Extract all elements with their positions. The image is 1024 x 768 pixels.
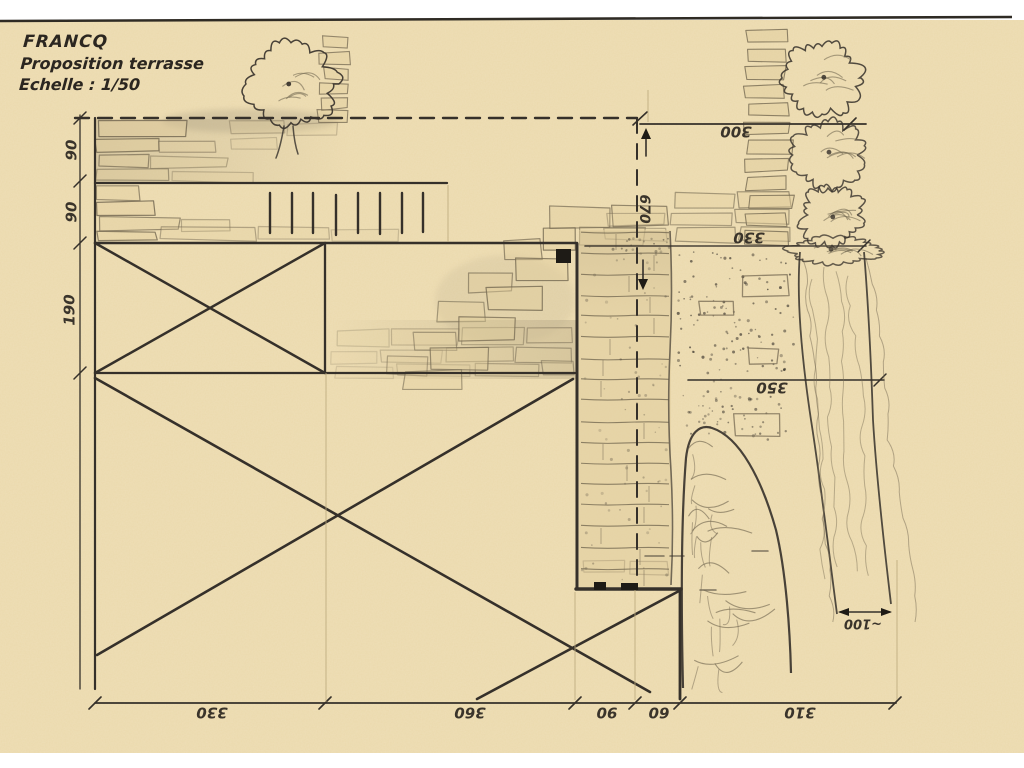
stone [159,141,216,152]
stipple-dot [712,252,714,254]
stone [527,328,573,343]
stipple-dot [626,240,628,242]
dim-offset-670: 670 [636,194,652,223]
stipple-dot [653,243,655,245]
terrace-plan-drawing: FRANCQ Proposition terrasse Echelle : 1/… [0,0,1024,768]
stone [151,156,229,169]
stipple-dot [752,426,754,428]
stipple-dot [767,438,770,441]
stipple-dot [780,354,783,357]
stipple-dot [623,258,625,260]
stipple-dot [698,405,699,406]
brick [745,158,789,172]
stipple-dot [707,311,709,313]
bush-center-dot [286,82,291,87]
stipple-dot [639,252,642,255]
stone [486,286,542,310]
stipple-dot [655,253,658,256]
brick [319,51,351,64]
stipple-dot [646,299,648,301]
stipple-dot [581,569,583,571]
stipple-dot [766,258,768,260]
stipple-dot [748,397,751,400]
stipple-dot [629,347,631,349]
stipple-dot [585,299,588,302]
dim-bottom-330: 330 [196,704,227,722]
stipple-dot [750,329,753,332]
stipple-dot [746,370,748,372]
stone [670,213,732,226]
stone [98,120,187,136]
stone [543,228,575,251]
stipple-dot [665,366,667,368]
stipple-dot [722,348,725,351]
stipple-dot [646,531,649,534]
stipple-dot [584,567,587,570]
stipple-dot [648,267,651,270]
stipple-dot [601,492,604,495]
stone [675,227,736,243]
stipple-dot [771,359,773,361]
stipple-dot [634,371,637,374]
dim-bottom-360: 360 [454,704,485,722]
stipple-dot [758,335,761,338]
stipple-dot [706,296,708,298]
stipple-dot [644,394,647,397]
stipple-dot [752,253,755,256]
stipple-dot [701,356,704,359]
brick [745,213,787,227]
stipple-dot [740,349,742,351]
stone [459,317,515,341]
stipple-dot [710,353,713,356]
stipple-dot [767,289,769,291]
stipple-dot [780,370,782,372]
stone [331,352,377,365]
stipple-dot [729,257,731,259]
stipple-dot [585,493,588,496]
stipple-dot [723,257,726,260]
stipple-dot [735,326,737,328]
stipple-dot [787,304,790,307]
stipple-dot [726,347,728,349]
stipple-dot [663,239,665,241]
stipple-dot [605,438,608,441]
title-scale: Echelle : 1/50 [18,75,140,94]
stipple-dot [726,358,729,361]
stipple-dot [691,295,694,298]
brick [746,29,788,42]
stipple-dot [652,384,654,386]
stipple-dot [627,449,630,452]
brick [747,140,794,154]
terrace-plan-screenshot: FRANCQ Proposition terrasse Echelle : 1/… [0,0,1024,768]
stipple-dot [716,286,718,288]
stipple-dot [643,567,644,568]
stipple-dot [598,429,601,432]
stipple-dot [702,395,704,397]
stipple-dot [730,387,733,390]
post-marker [556,249,571,263]
stipple-dot [743,414,745,416]
stipple-dot [765,300,768,303]
stipple-dot [734,322,736,324]
stipple-dot [666,242,668,244]
dim-left-190: 190 [61,294,79,325]
stipple-dot [657,481,659,483]
stipple-dot [631,248,634,251]
stipple-dot [628,518,631,521]
stipple-dot [690,299,692,301]
stipple-dot [757,357,758,358]
stipple-dot [603,388,605,390]
stipple-dot [715,283,718,286]
stipple-dot [775,367,778,370]
stipple-dot [638,238,641,241]
stipple-dot [667,238,669,240]
stipple-dot [736,337,739,340]
stipple-dot [665,573,668,576]
stipple-dot [660,250,663,253]
brick [743,84,784,98]
stipple-dot [697,319,699,321]
stipple-dot [719,418,721,420]
stipple-dot [748,333,749,334]
stipple-dot [617,318,619,320]
stipple-dot [689,296,691,298]
stipple-dot [605,300,608,303]
stipple-dot [661,363,662,364]
brick [749,103,789,116]
stipple-dot [692,275,694,277]
stipple-dot [660,506,662,508]
stipple-dot [712,410,714,412]
stipple-dot [739,333,742,336]
stipple-dot [646,490,648,492]
stipple-dot [707,390,710,393]
stone [675,192,735,208]
stipple-dot [677,312,680,315]
stone [337,329,389,347]
stipple-dot [608,509,611,512]
stipple-dot [610,317,612,319]
stipple-dot [656,261,658,263]
stipple-dot [643,240,645,242]
stipple-dot [762,421,764,423]
dim-right-300: 300 [720,123,751,141]
stipple-dot [720,391,722,393]
stipple-dot [658,427,659,428]
stipple-dot [690,315,692,317]
stone [550,206,610,229]
stipple-dot [678,291,679,292]
stipple-dot [646,261,649,264]
stone [97,231,157,240]
stipple-dot [783,280,785,282]
stone [430,347,488,370]
stipple-dot [738,319,741,322]
stone [96,201,155,216]
stipple-dot [677,299,679,301]
stipple-dot [725,308,726,309]
stipple-dot [693,324,695,326]
stipple-dot [689,346,691,348]
stipple-dot [708,432,710,434]
stipple-dot [665,479,668,482]
stipple-dot [756,398,759,401]
stipple-dot [792,343,795,346]
stipple-dot [783,329,786,332]
stipple-dot [709,358,712,361]
bush-center-dot [829,247,834,252]
stone [258,227,329,240]
stipple-dot [752,302,754,304]
stipple-dot [683,298,685,300]
stone [229,121,284,134]
stipple-dot [653,287,655,289]
stipple-dot [632,237,635,240]
stipple-dot [706,372,709,375]
stipple-dot [625,249,627,251]
brick [748,49,787,62]
stipple-dot [624,483,626,485]
stipple-dot [702,405,704,407]
stone [99,154,149,167]
stipple-dot [731,405,733,407]
stipple-dot [729,278,731,280]
stipple-dot [628,238,631,241]
stone [96,169,169,181]
stipple-dot [734,395,737,398]
stipple-dot [704,415,707,418]
stipple-dot [702,418,704,420]
stipple-dot [759,433,761,435]
brick [323,36,348,48]
stipple-dot [638,394,641,397]
stipple-dot [783,360,786,363]
title-client: FRANCQ [22,32,108,52]
stipple-dot [758,277,761,280]
stipple-dot [698,421,700,423]
stipple-dot [759,260,761,262]
stipple-dot [777,432,779,434]
stone [231,137,278,149]
stipple-dot [680,328,682,330]
stipple-dot [741,428,743,430]
stipple-dot [703,421,706,424]
stipple-dot [766,281,768,283]
shrub-branch [720,619,721,652]
stipple-dot [686,424,688,426]
stone [96,186,140,201]
stipple-dot [789,274,791,276]
stone-wall-central [579,230,673,587]
stipple-dot [731,340,733,342]
stone [95,139,159,153]
dim-bottom-90: 90 [597,704,618,722]
stipple-dot [658,247,661,250]
stipple-dot [649,528,651,530]
dim-left-90b: 90 [63,202,81,223]
stipple-dot [721,406,723,408]
stipple-dot [659,374,661,376]
stipple-dot [727,332,729,334]
stipple-dot [717,421,719,423]
dim-bottom-310: 310 [784,704,815,722]
stipple-dot [720,257,722,259]
stipple-dot [625,409,626,410]
stipple-dot [703,312,706,315]
stipple-dot [732,408,734,410]
stipple-dot [739,396,742,399]
stipple-dot [584,377,587,380]
stipple-dot [605,502,607,504]
stipple-dot [779,286,782,289]
stipple-dot [785,262,787,264]
stipple-dot [585,322,587,324]
title-subtitle: Proposition terrasse [20,54,205,73]
stipple-dot [785,430,787,432]
stipple-dot [716,423,718,425]
stipple-dot [591,544,593,546]
stipple-dot [720,306,723,309]
stipple-dot [677,359,680,362]
stipple-dot [612,248,615,251]
stipple-dot [760,341,762,343]
stipple-dot [778,403,781,406]
stipple-dot [744,281,747,284]
stipple-dot [772,342,775,345]
stipple-dot [679,365,681,367]
stipple-dot [650,238,652,240]
stipple-dot [687,411,690,414]
dim-right-330: 330 [733,229,764,247]
stipple-dot [690,433,692,435]
dim-right-350: 350 [756,379,787,397]
stipple-dot [616,259,618,261]
stipple-dot [610,458,613,461]
stipple-dot [783,369,785,371]
stipple-dot [707,413,709,415]
stone [172,171,253,183]
stipple-dot [628,391,630,393]
stipple-dot [771,334,773,336]
stipple-dot [693,251,695,253]
dim-hedge-100: ~100 [844,616,882,631]
stipple-dot [693,351,695,353]
stipple-dot [793,316,795,318]
stipple-dot [665,448,668,451]
stone [607,213,665,226]
stipple-dot [655,432,656,433]
stone [160,227,256,242]
bush-center-dot [821,75,826,80]
stone [331,229,398,241]
brick [745,176,786,191]
stipple-dot [644,292,646,294]
stipple-dot [779,312,781,314]
stipple-dot [727,422,729,424]
stipple-dot [690,260,693,263]
stipple-dot [780,407,782,409]
stipple-dot [683,395,684,396]
stipple-dot [755,329,757,331]
stipple-dot [780,261,782,263]
stipple-dot [740,269,742,271]
stipple-dot [654,250,657,253]
stipple-dot [643,414,645,416]
stipple-dot [713,306,716,309]
stipple-dot [658,542,660,544]
stipple-dot [719,369,721,371]
stipple-dot [680,318,682,320]
stipple-dot [722,411,725,414]
dim-left-90a: 90 [63,140,81,161]
stipple-dot [716,253,718,255]
stipple-dot [585,531,588,534]
stipple-dot [714,344,717,347]
stipple-dot [755,433,757,435]
stipple-dot [621,398,623,400]
stipple-dot [747,319,750,322]
stipple-dot [664,295,666,297]
stipple-dot [592,562,594,564]
brick [324,67,349,80]
stipple-dot [754,408,757,411]
stipple-dot [621,248,623,250]
brick [749,195,795,208]
stipple-dot [683,280,686,283]
stipple-dot [744,418,746,420]
stipple-dot [709,407,711,409]
stipple-dot [678,254,680,256]
stipple-dot [732,350,735,353]
stipple-dot [642,476,644,478]
stipple-dot [742,347,744,349]
stipple-dot [619,509,621,511]
bush-center-dot [830,215,835,220]
stipple-dot [593,274,596,277]
stipple-dot [715,397,718,400]
stipple-dot [619,358,621,360]
wall-fill [579,230,671,587]
stipple-dot [775,308,777,310]
stipple-dot [677,351,680,354]
stipple-dot [621,579,623,581]
stipple-dot [731,267,733,269]
stipple-dot [625,466,628,469]
dim-bottom-60: 60 [649,704,670,722]
stipple-dot [759,425,761,427]
step-tab-2 [621,583,638,590]
bush-center-dot [827,150,832,155]
stipple-dot [762,365,764,367]
stipple-dot [735,363,737,365]
step-tab-1 [594,582,606,590]
brick [745,66,786,80]
